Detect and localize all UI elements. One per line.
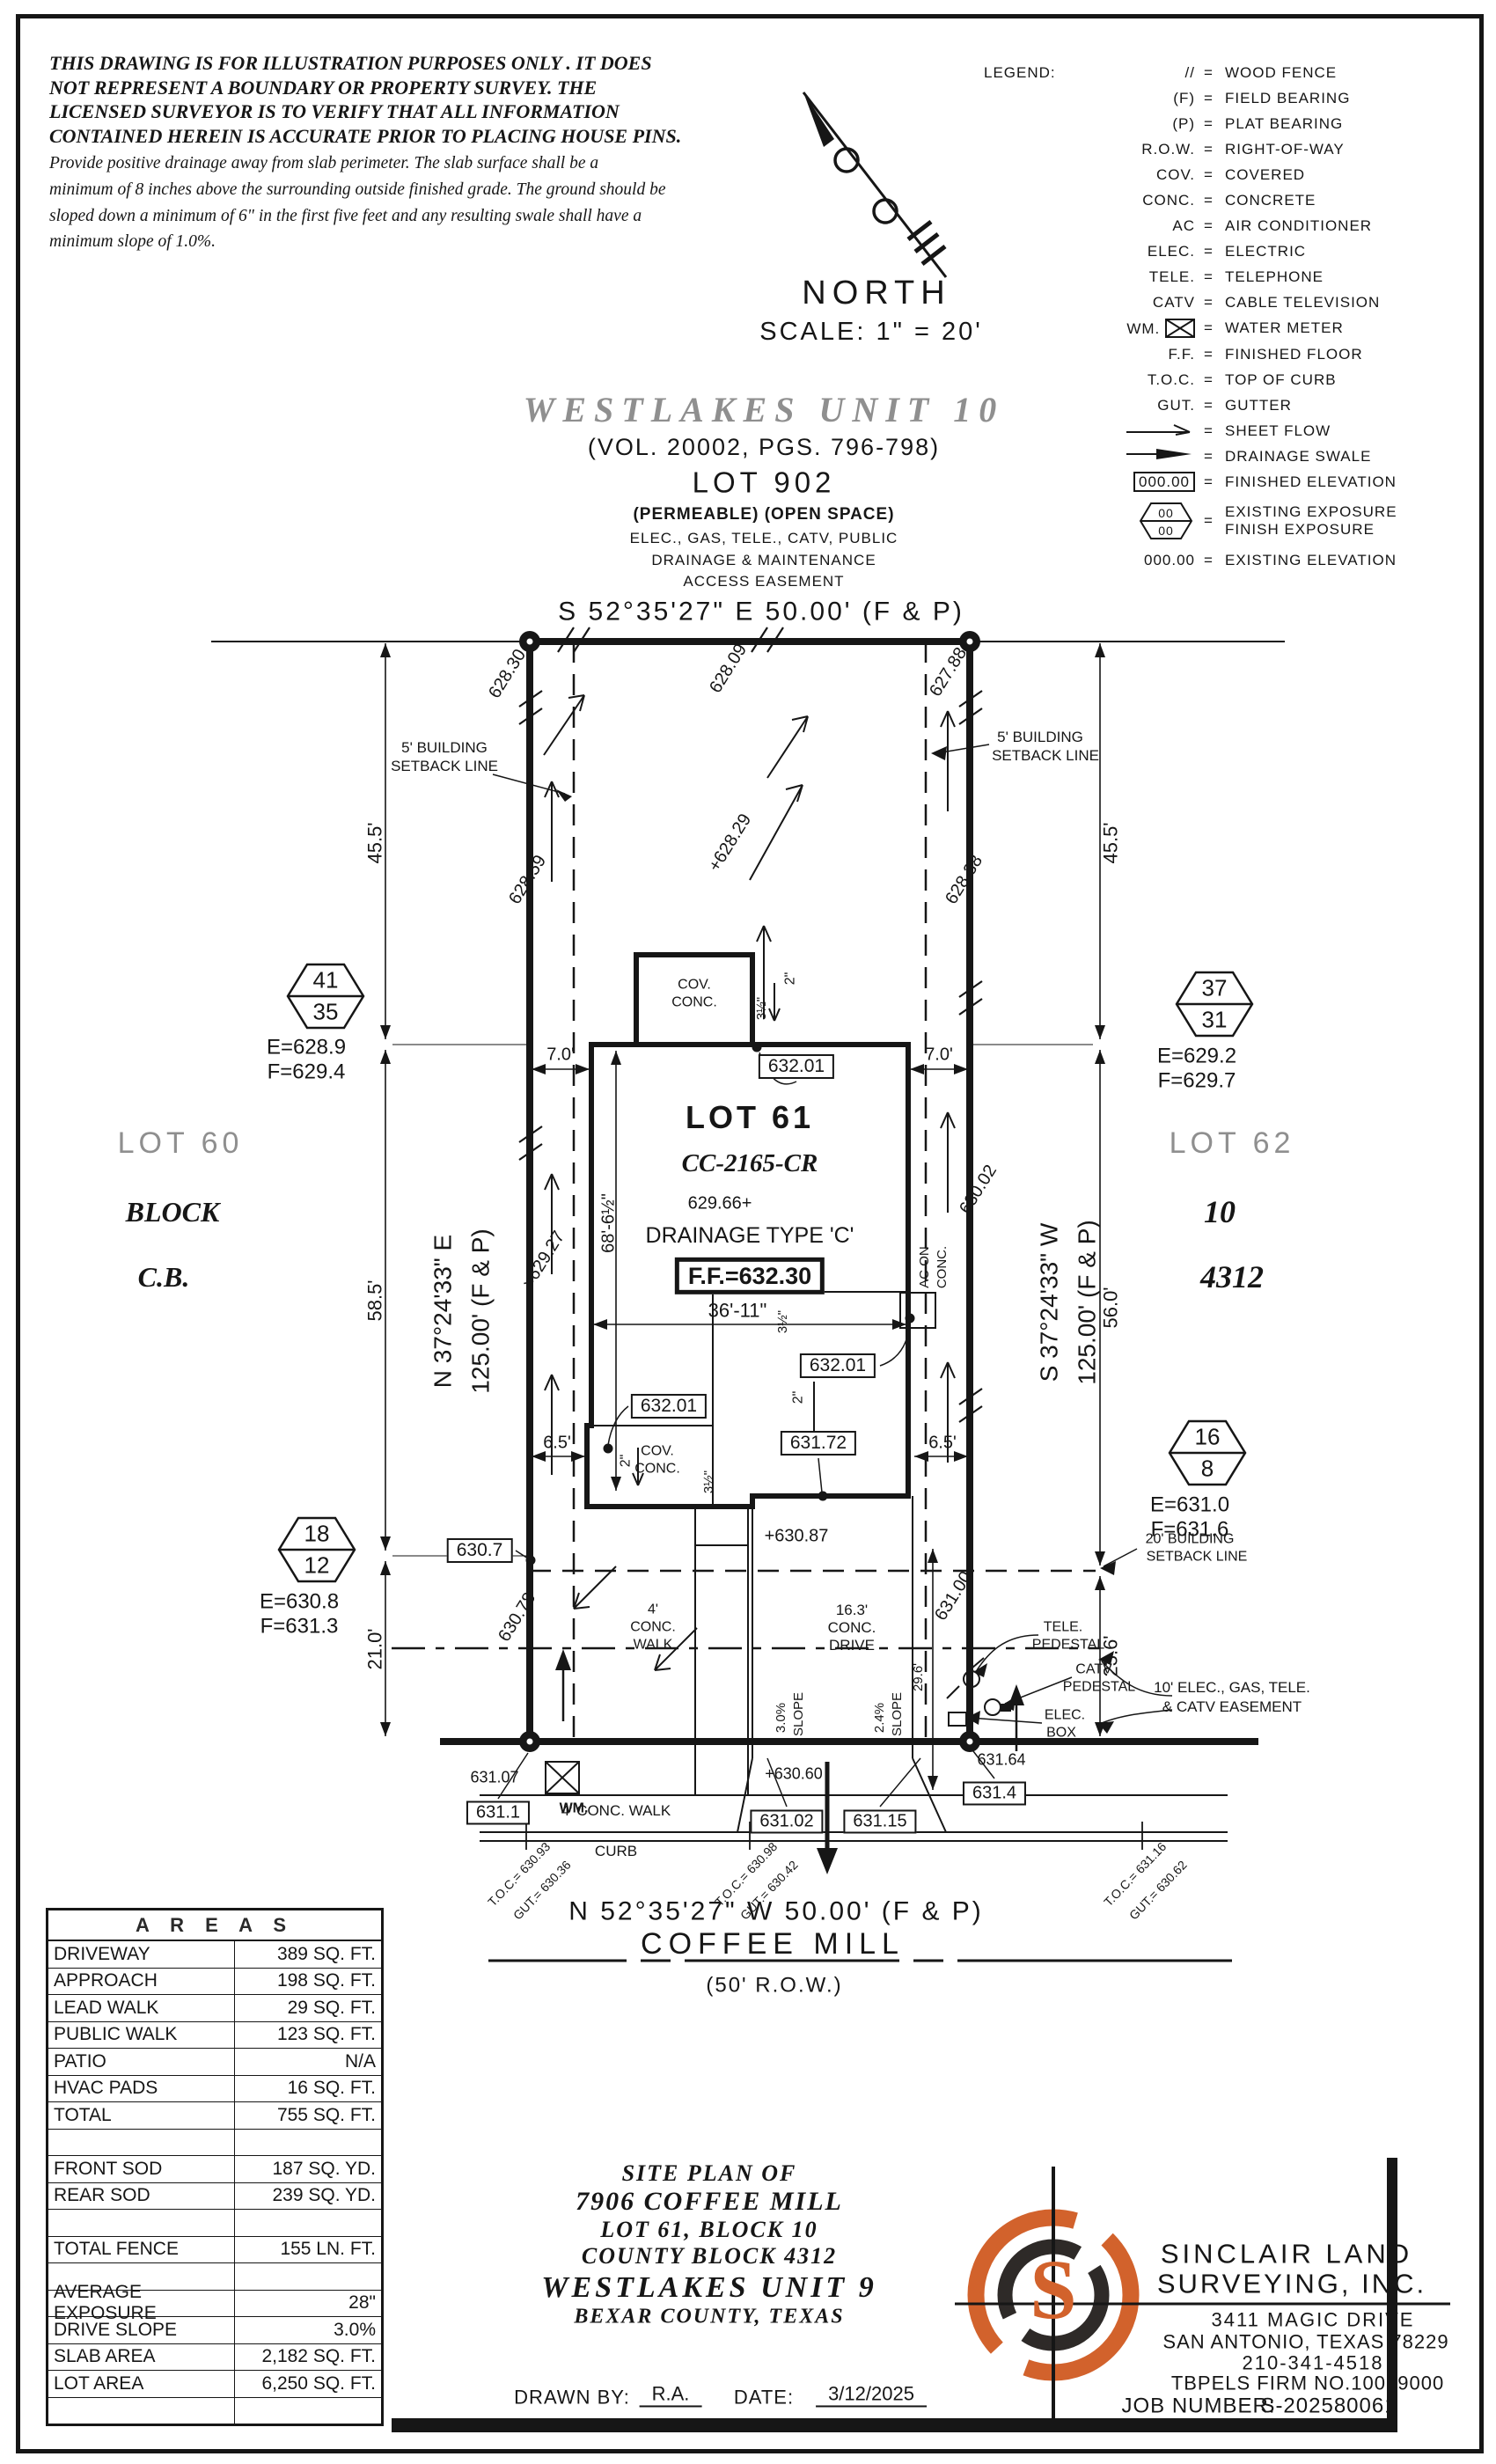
plat-annotation: ELEC. (1045, 1709, 1085, 1724)
plat-annotation: 36'-11" (708, 1300, 767, 1320)
areas-row-value: 28" (235, 2292, 381, 2314)
plat-annotation: CONC. (935, 1246, 950, 1288)
drainage-note-line: Provide positive drainage away from slab… (49, 153, 753, 174)
disclaimer-line: LICENSED SURVEYOR IS TO VERIFY THAT ALL … (49, 99, 753, 124)
hex-35: 35 (313, 1000, 339, 1023)
legend-symbol: // (1185, 64, 1195, 81)
cb-4312-label: 4312 (1200, 1261, 1264, 1294)
legend-row: F.F.=FINISHED FLOOR (1081, 345, 1477, 363)
legend-equals: = (1204, 141, 1225, 158)
disclaimer-line: THIS DRAWING IS FOR ILLUSTRATION PURPOSE… (49, 51, 753, 76)
plat-annotation: 3.0% (774, 1703, 788, 1733)
plat-annotation: 56.0' (1100, 1287, 1120, 1328)
areas-row-value: 16 SQ. FT. (235, 2078, 381, 2099)
plat-annotation: DRIVE (829, 1638, 875, 1654)
plat-annotation: 3½" (702, 1470, 716, 1493)
plat-annotation: 4' (648, 1603, 658, 1618)
west-bearing: N 37°24'33" E (429, 1235, 455, 1388)
disclaimer-line: NOT REPRESENT A BOUNDARY OR PROPERTY SUR… (49, 76, 753, 100)
hex-16: 16 (1195, 1425, 1221, 1448)
plat-annotation: 7.0' (546, 1046, 575, 1065)
site-plan-sheet: THIS DRAWING IS FOR ILLUSTRATION PURPOSE… (0, 0, 1496, 2464)
plat-annotation: 2" (784, 972, 799, 986)
areas-row-label: REAR SOD (48, 2183, 235, 2210)
areas-row-value: N/A (235, 2051, 381, 2072)
areas-row: HVAC PADS16 SQ. FT. (48, 2076, 381, 2103)
legend-symbol: COV. (1156, 166, 1195, 183)
legend-symbol: 000.00 (1144, 552, 1195, 568)
date-label: DATE: (734, 2387, 794, 2407)
areas-row-label (48, 2210, 235, 2236)
legend-symbol: ELEC. (1148, 243, 1195, 260)
legend-symbol: (F) (1173, 90, 1195, 106)
areas-row: LOT AREA6,250 SQ. FT. (48, 2371, 381, 2398)
hex-12: 12 (304, 1553, 330, 1577)
legend-equals: = (1204, 371, 1225, 389)
plat-annotation: SETBACK LINE (992, 748, 1099, 764)
job-number-value: S-202580061 (1260, 2394, 1397, 2416)
areas-table-title: A R E A S (48, 1910, 381, 1941)
areas-row: TOTAL755 SQ. FT. (48, 2102, 381, 2130)
block-label: BLOCK (126, 1198, 220, 1228)
areas-row-value: 2,182 SQ. FT. (235, 2346, 381, 2367)
plat-annotation: TELE. (1044, 1621, 1082, 1636)
areas-row-value: 198 SQ. FT. (235, 1970, 381, 1991)
legend-equals: = (1204, 294, 1225, 312)
areas-row (48, 2130, 381, 2157)
elec-box-icon (949, 1712, 966, 1726)
areas-row (48, 2398, 381, 2424)
drawn-by-value: R.A. (640, 2383, 702, 2407)
svg-text:00: 00 (1158, 506, 1174, 520)
surveyor-address1: 3411 MAGIC DRIVE (1212, 2309, 1415, 2329)
legend-description: FINISHED ELEVATION (1225, 473, 1397, 491)
plat-annotation: 5' BUILDING (401, 740, 488, 756)
plat-annotation: 21.0' (364, 1628, 385, 1669)
legend-description: AIR CONDITIONER (1225, 217, 1372, 235)
areas-row: DRIVEWAY389 SQ. FT. (48, 1941, 381, 1969)
plat-annotation: SETBACK LINE (391, 759, 498, 774)
logo-letter: S (1030, 2240, 1076, 2338)
areas-row-label: PUBLIC WALK (48, 2022, 235, 2049)
plat-annotation: 20' BUILDING (1146, 1533, 1235, 1548)
drawn-by-label: DRAWN BY: (514, 2387, 630, 2407)
plat-annotation: 45.5' (364, 822, 385, 863)
easement-note-line: ACCESS EASEMENT (683, 574, 844, 590)
sheet-flow-icon (1125, 422, 1195, 436)
hex-18: 18 (304, 1522, 330, 1545)
legend-description: RIGHT-OF-WAY (1225, 141, 1345, 158)
plat-annotation: 631.1 (466, 1801, 530, 1825)
legend-description: TOP OF CURB (1225, 371, 1337, 389)
plat-annotation: 6.5' (928, 1434, 957, 1453)
areas-row: PUBLIC WALK123 SQ. FT. (48, 2022, 381, 2050)
finished-floor: F.F.=632.30 (675, 1258, 825, 1294)
legend-symbol: (P) (1172, 115, 1195, 132)
water-meter-icon (1165, 319, 1195, 338)
legend-row: T.O.C.=TOP OF CURB (1081, 370, 1477, 389)
legend-equals: = (1204, 217, 1225, 235)
drainage-note-line: minimum of 8 inches above the surroundin… (49, 180, 753, 201)
catv-pedestal-icon (985, 1699, 1011, 1715)
legend-description: EXISTING EXPOSUREFINISH EXPOSURE (1225, 503, 1397, 539)
disclaimer-note: THIS DRAWING IS FOR ILLUSTRATION PURPOSE… (49, 51, 753, 253)
legend-equals: = (1204, 319, 1225, 337)
disclaimer-line: CONTAINED HEREIN IS ACCURATE PRIOR TO PL… (49, 124, 753, 149)
areas-row: LEAD WALK29 SQ. FT. (48, 1995, 381, 2022)
titleblock-address: 7906 COFFEE MILL (576, 2187, 843, 2217)
north-label: NORTH (802, 276, 950, 312)
plat-annotation: CONC. (828, 1620, 876, 1636)
legend-row: 000.00=EXISTING ELEVATION (1081, 551, 1477, 569)
plat-annotation: PEDESTAL (1063, 1681, 1135, 1696)
areas-row-label: SLAB AREA (48, 2344, 235, 2371)
legend-row: CONC.=CONCRETE (1081, 191, 1477, 209)
plat-annotation: 68'-6½" (600, 1193, 619, 1253)
areas-row-label: HVAC PADS (48, 2076, 235, 2102)
plat-annotation: 6.5' (543, 1434, 571, 1453)
areas-row-label (48, 2130, 235, 2156)
areas-row-value: 3.0% (235, 2320, 381, 2341)
areas-row: FRONT SOD187 SQ. YD. (48, 2156, 381, 2183)
plat-annotation: 2" (792, 1391, 807, 1404)
legend-row: AC=AIR CONDITIONER (1081, 216, 1477, 235)
plat-annotation: 2" (620, 1455, 634, 1468)
plat-annotation: 629.66+ (688, 1195, 752, 1214)
east-distance: 125.00' (F & P) (1074, 1220, 1099, 1384)
north-arrow-icon (803, 92, 946, 277)
plat-annotation: 4' CONC. WALK (561, 1803, 671, 1819)
plat-annotation: F=629.7 (1158, 1069, 1236, 1091)
legend-description: DRAINAGE SWALE (1225, 448, 1371, 466)
areas-row-label: LEAD WALK (48, 1995, 235, 2021)
subdivision-name: WESTLAKES UNIT 10 (524, 392, 1004, 429)
plat-annotation: 631.15 (843, 1810, 916, 1834)
titleblock-county: BEXAR COUNTY, TEXAS (574, 2306, 844, 2329)
plat-annotation: 630.7 (447, 1538, 513, 1563)
legend-title: LEGEND: (984, 64, 1056, 82)
legend-row: 0000=EXISTING EXPOSUREFINISH EXPOSURE (1081, 498, 1477, 544)
plat-annotation: CURB (595, 1844, 637, 1859)
plat-annotation: 631.4 (963, 1782, 1026, 1806)
plat-annotation: 2.4% (873, 1703, 887, 1733)
areas-row-label: AVERAGE EXPOSURE (48, 2291, 235, 2317)
plat-annotation: 7.0' (925, 1046, 953, 1065)
legend-equals: = (1204, 90, 1225, 107)
plat-annotation: 58.5' (364, 1280, 385, 1321)
legend-row: COV.=COVERED (1081, 165, 1477, 184)
legend-symbol: GUT. (1157, 397, 1195, 414)
legend-equals: = (1204, 192, 1225, 209)
areas-row-label (48, 2398, 235, 2424)
plat-annotation: CONC. (671, 996, 717, 1011)
plat-annotation: CATV (1075, 1663, 1111, 1678)
legend-symbol: CONC. (1142, 192, 1195, 209)
legend-equals: = (1204, 64, 1225, 82)
plat-annotation: 631.72 (781, 1431, 856, 1456)
plat-annotation: 632.01 (800, 1353, 876, 1378)
areas-row-label: FRONT SOD (48, 2156, 235, 2182)
legend-row: ELEC.=ELECTRIC (1081, 242, 1477, 260)
lot-61-label: LOT 61 (686, 1101, 814, 1134)
easement-note-line: (PERMEABLE) (OPEN SPACE) (633, 506, 894, 524)
drainage-type: DRAINAGE TYPE 'C' (646, 1224, 854, 1247)
legend-equals: = (1204, 268, 1225, 286)
areas-row-label: DRIVE SLOPE (48, 2317, 235, 2343)
plat-annotation: 5' BUILDING (997, 730, 1083, 745)
areas-table: A R E A S DRIVEWAY389 SQ. FT.APPROACH198… (46, 1908, 384, 2426)
legend-equals: = (1204, 552, 1225, 569)
legend-equals: = (1204, 473, 1225, 491)
street-name: COFFEE MILL (641, 1929, 905, 1961)
legend-description: CONCRETE (1225, 192, 1316, 209)
plat-annotation: E=631.0 (1150, 1493, 1229, 1515)
areas-row: DRIVE SLOPE3.0% (48, 2317, 381, 2344)
legend-equals: = (1204, 422, 1225, 440)
legend-equals: = (1204, 115, 1225, 133)
areas-row (48, 2210, 381, 2237)
surveyor-firm: TBPELS FIRM NO.10089000 (1171, 2372, 1444, 2393)
legend: LEGEND: //=WOOD FENCE(F)=FIELD BEARING(P… (1081, 63, 1477, 576)
plat-annotation: 45.5' (1100, 822, 1120, 863)
titleblock-county-block: COUNTY BLOCK 4312 (582, 2243, 837, 2270)
legend-row: =SHEET FLOW (1081, 422, 1477, 440)
surveyor-address2: SAN ANTONIO, TEXAS 78229 (1162, 2331, 1448, 2351)
plat-annotation: AC ON (918, 1246, 932, 1288)
hex-41: 41 (313, 968, 339, 992)
legend-symbol: F.F. (1169, 346, 1195, 363)
plat-annotation: SETBACK LINE (1147, 1551, 1248, 1566)
plat-annotation: 631.07 (470, 1770, 518, 1786)
areas-row: AVERAGE EXPOSURE28" (48, 2291, 381, 2318)
hex-31: 31 (1202, 1008, 1228, 1031)
areas-row-value: 187 SQ. YD. (235, 2159, 381, 2180)
tele-pedestal-icon (947, 1658, 984, 1698)
plat-annotation: WALK (634, 1639, 673, 1654)
legend-equals: = (1204, 346, 1225, 363)
legend-row: R.O.W.=RIGHT-OF-WAY (1081, 140, 1477, 158)
legend-row: //=WOOD FENCE (1081, 63, 1477, 82)
legend-equals: = (1204, 448, 1225, 466)
plat-annotation: +630.87 (765, 1528, 829, 1546)
plat-annotation: 3½" (755, 997, 769, 1020)
plat-annotation: COV. (678, 979, 711, 994)
north-boundary-bearing: S 52°35'27" E 50.00' (F & P) (558, 598, 964, 626)
plat-annotation: CONC. (634, 1463, 680, 1478)
titleblock-subdivision: WESTLAKES UNIT 9 (541, 2271, 876, 2305)
street-row-label: (50' R.O.W.) (706, 1974, 842, 1996)
scale-label: SCALE: 1" = 20' (759, 319, 982, 345)
plat-annotation: PEDESTAL (1032, 1639, 1104, 1654)
finished-elevation-symbol: 000.00 (1133, 472, 1195, 492)
legend-description: SHEET FLOW (1225, 422, 1331, 440)
areas-row: PATION/A (48, 2049, 381, 2076)
plat-annotation: SLOPE (891, 1692, 905, 1736)
plat-annotation: & CATV EASEMENT (1162, 1699, 1302, 1715)
plat-annotation: CONC. (630, 1621, 676, 1636)
legend-symbol: R.O.W. (1141, 141, 1195, 158)
plat-annotation: BOX (1046, 1727, 1076, 1742)
areas-row-label: TOTAL (48, 2102, 235, 2129)
plat-annotation: 3½" (776, 1310, 790, 1333)
legend-description: WOOD FENCE (1225, 64, 1337, 82)
legend-row: TELE.=TELEPHONE (1081, 268, 1477, 286)
surveyor-phone: 210-341-4518 (1242, 2352, 1383, 2372)
areas-row-value: 29 SQ. FT. (235, 1998, 381, 2019)
exposure-hexagon-icon: 0000 (1137, 498, 1195, 544)
areas-row-value: 6,250 SQ. FT. (235, 2373, 381, 2394)
legend-equals: = (1204, 512, 1225, 530)
areas-row: REAR SOD239 SQ. YD. (48, 2183, 381, 2211)
plat-annotation: 29.6' (912, 1663, 926, 1691)
legend-symbol: AC (1172, 217, 1195, 234)
legend-symbol: CATV (1153, 294, 1195, 311)
block-cb-label: C.B. (138, 1263, 190, 1293)
legend-description: COVERED (1225, 166, 1305, 184)
block-10-label: 10 (1204, 1196, 1236, 1229)
legend-row: =DRAINAGE SWALE (1081, 447, 1477, 466)
titleblock-lot: LOT 61, BLOCK 10 (600, 2217, 818, 2243)
plat-annotation: E=629.2 (1157, 1045, 1236, 1067)
plat-annotation: E=630.8 (260, 1590, 339, 1612)
plat-annotation: F=631.3 (260, 1615, 339, 1637)
surveyor-name-line2: SURVEYING, INC. (1157, 2270, 1426, 2299)
areas-row-value: 389 SQ. FT. (235, 1944, 381, 1965)
legend-equals: = (1204, 243, 1225, 260)
plat-annotation: SLOPE (792, 1692, 806, 1736)
legend-equals: = (1204, 397, 1225, 414)
hex-37: 37 (1202, 976, 1228, 1000)
job-number-label: JOB NUMBER: (1121, 2394, 1275, 2416)
plat-annotation: 16.3' (836, 1602, 868, 1618)
drainage-swale-icon (1125, 447, 1195, 461)
legend-description: FIELD BEARING (1225, 90, 1350, 107)
subdivision-lot: LOT 902 (693, 468, 836, 499)
legend-row: CATV=CABLE TELEVISION (1081, 293, 1477, 312)
legend-symbol: TELE. (1149, 268, 1195, 285)
easement-note-line: ELEC., GAS, TELE., CATV, PUBLIC (630, 531, 898, 546)
areas-row-label: LOT AREA (48, 2371, 235, 2397)
plat-annotation: +630.60 (765, 1766, 823, 1783)
lot-60-label: LOT 60 (118, 1128, 244, 1160)
plan-number: CC-2165-CR (682, 1150, 818, 1177)
legend-row: WM. =WATER METER (1081, 319, 1477, 338)
legend-row: 000.00=FINISHED ELEVATION (1081, 473, 1477, 491)
lot-62-label: LOT 62 (1170, 1128, 1295, 1160)
svg-text:00: 00 (1158, 524, 1174, 538)
plat-annotation: E=628.9 (267, 1036, 346, 1058)
plat-annotation: 631.02 (750, 1810, 823, 1834)
surveyor-name-line1: SINCLAIR LAND (1161, 2240, 1412, 2270)
south-boundary-bearing: N 52°35'27" W 50.00' (F & P) (568, 1897, 984, 1925)
legend-description: ELECTRIC (1225, 243, 1306, 260)
plat-annotation: 632.01 (759, 1054, 834, 1079)
areas-row: APPROACH198 SQ. FT. (48, 1969, 381, 1996)
legend-description: EXISTING ELEVATION (1225, 552, 1397, 569)
areas-row: TOTAL FENCE155 LN. FT. (48, 2237, 381, 2264)
water-meter-symbol: WM. (1126, 320, 1165, 337)
plat-annotation: F=629.4 (268, 1060, 346, 1082)
legend-row: GUT.=GUTTER (1081, 396, 1477, 414)
plat-annotation: 632.01 (631, 1394, 707, 1419)
areas-row-label: APPROACH (48, 1969, 235, 1995)
areas-row-label: PATIO (48, 2049, 235, 2075)
legend-description: CABLE TELEVISION (1225, 294, 1380, 312)
west-distance: 125.00' (F & P) (467, 1228, 493, 1393)
plat-annotation: 631.64 (977, 1752, 1025, 1769)
subdivision-volume: (VOL. 20002, PGS. 796-798) (588, 435, 940, 459)
legend-description: PLAT BEARING (1225, 115, 1343, 133)
areas-row-label: DRIVEWAY (48, 1941, 235, 1968)
plat-annotation: 10' ELEC., GAS, TELE. (1154, 1680, 1310, 1696)
areas-row-label: TOTAL FENCE (48, 2237, 235, 2263)
drainage-note-line: sloped down a minimum of 6" in the first… (49, 206, 753, 227)
drainage-note-line: minimum slope of 1.0%. (49, 231, 753, 253)
legend-symbol: T.O.C. (1148, 371, 1195, 388)
areas-row-value: 755 SQ. FT. (235, 2105, 381, 2126)
east-bearing: S 37°24'33" W (1036, 1223, 1061, 1382)
easement-note-line: DRAINAGE & MAINTENANCE (651, 553, 876, 568)
date-value: 3/12/2025 (816, 2383, 927, 2407)
areas-row: SLAB AREA2,182 SQ. FT. (48, 2344, 381, 2372)
areas-row-value: 123 SQ. FT. (235, 2024, 381, 2045)
legend-equals: = (1204, 166, 1225, 184)
water-meter-icon (546, 1762, 579, 1793)
hex-8: 8 (1201, 1456, 1214, 1480)
legend-row: (F)=FIELD BEARING (1081, 89, 1477, 107)
areas-row-value: 155 LN. FT. (235, 2239, 381, 2260)
legend-row: (P)=PLAT BEARING (1081, 114, 1477, 133)
plat-annotation: COV. (641, 1445, 674, 1460)
legend-description: TELEPHONE (1225, 268, 1324, 286)
titleblock-line: SITE PLAN OF (622, 2160, 797, 2187)
legend-description: FINISHED FLOOR (1225, 346, 1363, 363)
legend-description: WATER METER (1225, 319, 1344, 337)
legend-description: GUTTER (1225, 397, 1292, 414)
areas-row-value: 239 SQ. YD. (235, 2185, 381, 2206)
